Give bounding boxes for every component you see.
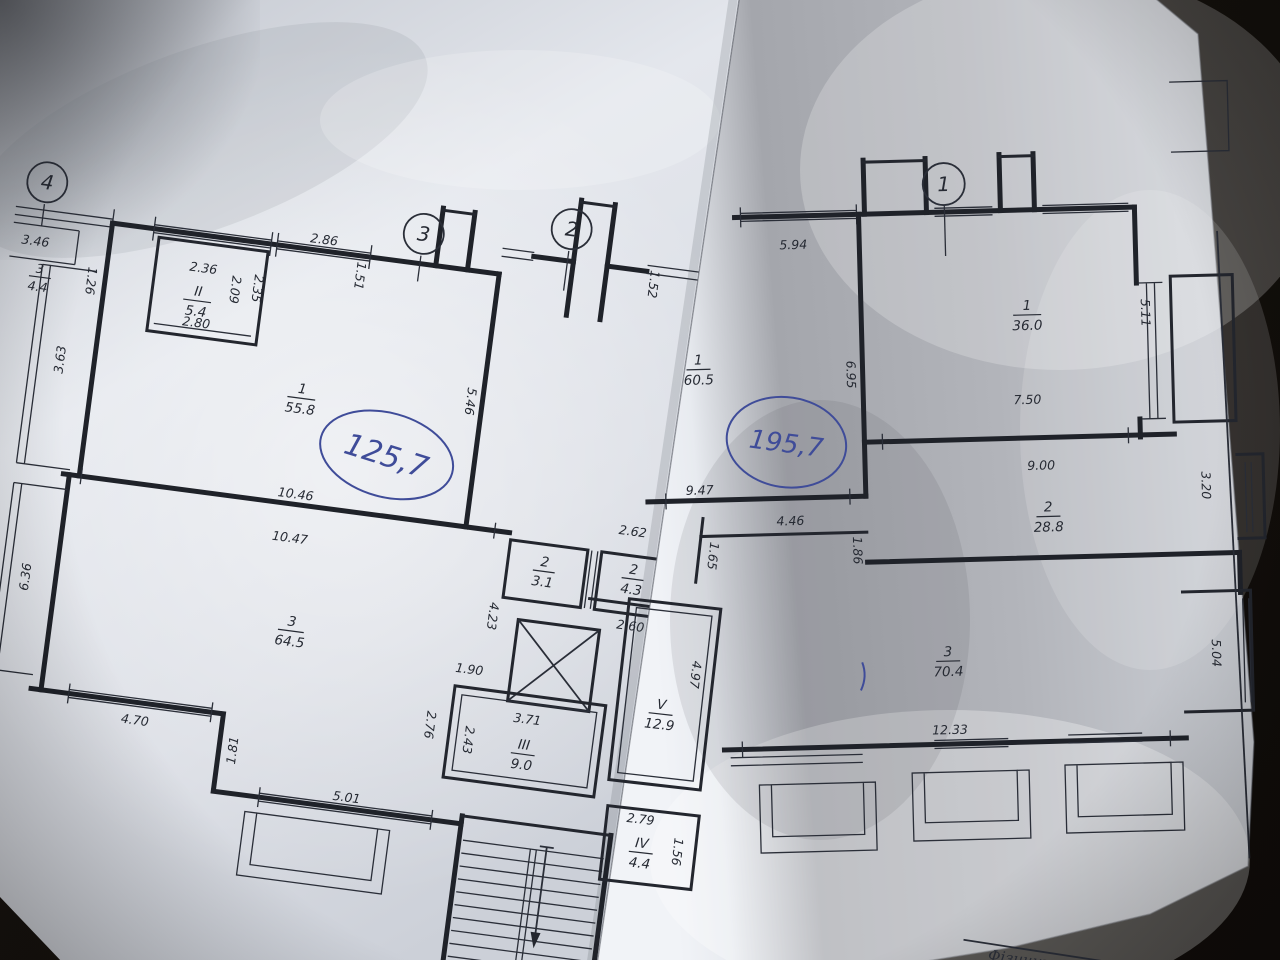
floor-plan-photo: 4 3 2 [0,0,1280,960]
photo-of-floor-plans: 4 3 2 [0,0,1280,960]
vignette-overlay [0,0,1280,960]
